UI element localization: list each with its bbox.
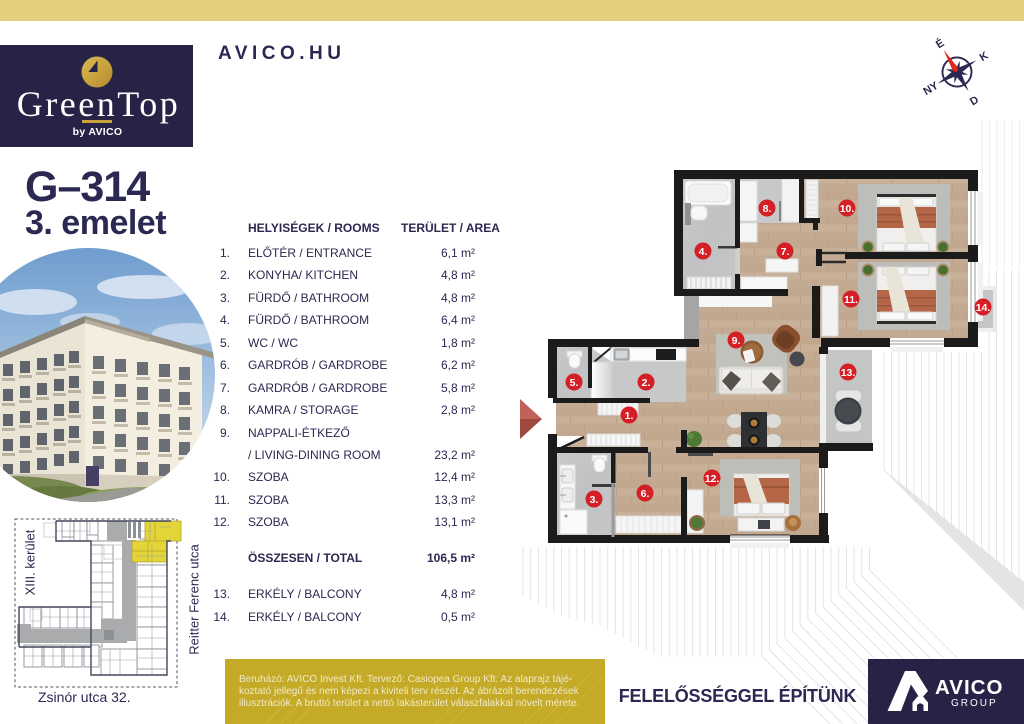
svg-text:12.: 12. bbox=[705, 473, 720, 485]
svg-text:D: D bbox=[968, 94, 981, 108]
svg-text:10.: 10. bbox=[840, 203, 855, 215]
svg-text:13.: 13. bbox=[841, 367, 856, 379]
svg-text:14.: 14. bbox=[976, 302, 991, 314]
svg-text:1.: 1. bbox=[625, 410, 634, 422]
svg-text:7.: 7. bbox=[781, 246, 790, 258]
svg-text:2.: 2. bbox=[642, 377, 651, 389]
svg-text:8.: 8. bbox=[763, 203, 772, 215]
svg-text:6.: 6. bbox=[641, 488, 650, 500]
svg-text:NY: NY bbox=[921, 79, 941, 97]
svg-text:5.: 5. bbox=[570, 377, 579, 389]
svg-text:11.: 11. bbox=[844, 294, 858, 306]
svg-text:9.: 9. bbox=[732, 335, 741, 347]
svg-text:É: É bbox=[934, 36, 947, 51]
svg-text:K: K bbox=[978, 50, 991, 64]
svg-text:4.: 4. bbox=[699, 246, 708, 258]
svg-text:3.: 3. bbox=[590, 494, 599, 506]
